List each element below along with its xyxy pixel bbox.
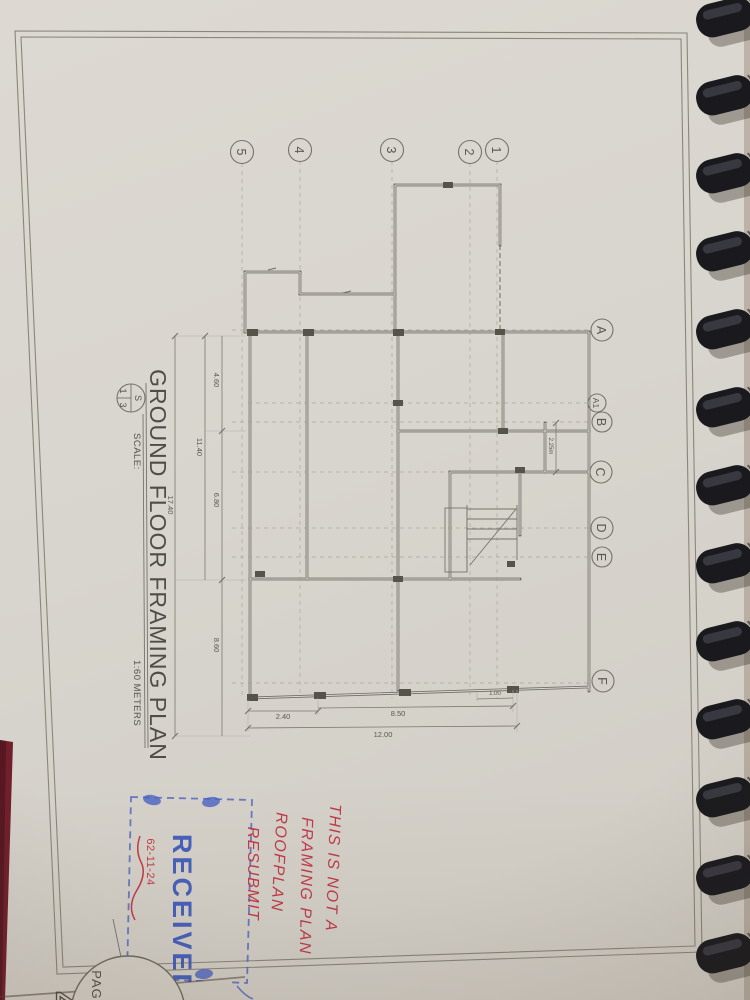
drawing-frame (15, 31, 702, 974)
received-stamp-text: RECEIVED (167, 834, 197, 996)
scale-label: SCALE: (131, 433, 142, 470)
dimensions: 17.40 11.40 4.60 6.80 8.60 2.40 8.50 1.0… (166, 268, 559, 739)
grid-bubble-D-label: D (594, 523, 608, 532)
grid-bubble-E: E (592, 547, 612, 567)
framing-beams-inner (245, 185, 589, 698)
notebook-photo: 17.40 11.40 4.60 6.80 8.60 2.40 8.50 1.0… (0, 0, 750, 1000)
dim-d3-label: 1.00 (489, 691, 501, 697)
grid-bubble-5: 5 (231, 141, 254, 164)
grid-bubble-4-label: 4 (292, 147, 306, 154)
binder-coil (693, 384, 750, 440)
note-line-1: THIS IS NOT A (322, 804, 343, 933)
dim-sub-width-label: 11.40 (195, 438, 204, 456)
framing-beams (245, 185, 589, 698)
underlying-page-corner: PAG 4 (0, 919, 245, 1000)
spiral-binding (693, 0, 750, 1000)
column-markers (247, 182, 525, 701)
detail-marker-top: S (133, 395, 143, 401)
grid-bubble-4: 4 (289, 139, 312, 162)
grid-bubble-B-label: B (594, 418, 608, 426)
dim-w2-label: 6.80 (212, 493, 221, 508)
grid-bubble-A-label: A (594, 326, 608, 335)
binder-coil (693, 306, 750, 362)
note-line-4: RESUBMIT (244, 827, 261, 922)
binder-coil (693, 774, 750, 830)
binder-coil (693, 72, 750, 128)
grid-bubble-B: B (592, 412, 612, 432)
stairs (445, 505, 517, 572)
binder-coil (693, 0, 750, 50)
grid-bubble-3: 3 (381, 139, 404, 162)
dim-d2-label: 8.50 (391, 709, 406, 718)
table-surface (0, 740, 13, 1000)
grid-bubble-D: D (591, 517, 613, 539)
binder-coil (693, 696, 750, 752)
detail-marker: S 1 3 (117, 384, 145, 412)
date-text: 62-11-24 (144, 838, 156, 885)
grid-bubble-E-label: E (594, 553, 608, 561)
reviewer-note: THIS IS NOT A FRAMING PLAN ROOFPLAN RESU… (244, 804, 343, 955)
grid-bubble-2-label: 2 (462, 149, 476, 156)
binder-coil (693, 540, 750, 596)
grid-bubble-2: 2 (459, 141, 482, 164)
grid-bubble-5-label: 5 (234, 149, 248, 156)
grid-bubble-C-label: C (593, 467, 607, 476)
grid-bubbles-numbers: 1 2 3 4 5 (231, 139, 509, 164)
stamp-ink-blob (142, 793, 162, 807)
scale-value: 1:60 METERS (131, 660, 142, 726)
page-number: 4 (36, 991, 96, 1000)
grid-bubble-F-label: F (595, 677, 609, 685)
drawing-title: GROUND FLOOR FRAMING PLAN (145, 369, 171, 761)
dim-d1-label: 2.40 (276, 712, 291, 721)
grid-bubble-F: F (592, 670, 614, 692)
grid-bubbles-letters: A A1 B C D E F (588, 319, 614, 692)
detail-marker-left: 1 (118, 388, 128, 393)
date-annotation: 62-11-24 (131, 836, 156, 920)
dim-total-depth-label: 12.00 (374, 730, 393, 739)
detail-marker-right: 3 (118, 402, 128, 407)
note-line-2: FRAMING PLAN (296, 817, 315, 955)
note-line-3: ROOFPLAN (267, 812, 289, 913)
binder-coil (693, 150, 750, 206)
framing-plan-sheet: 17.40 11.40 4.60 6.80 8.60 2.40 8.50 1.0… (0, 0, 750, 1000)
grid-bubble-A1-label: A1 (591, 398, 601, 409)
grid-bubble-A: A (591, 319, 613, 341)
dim-w3-label: 8.60 (212, 638, 221, 653)
column-grid-lines (232, 161, 591, 698)
dim-interior-label: 2.25m (547, 438, 553, 455)
title-block: S 1 3 GROUND FLOOR FRAMING PLAN SCALE: 1… (117, 369, 171, 761)
binder-coil (693, 618, 750, 674)
grid-bubble-1-label: 1 (489, 147, 503, 154)
grid-bubble-C: C (590, 461, 612, 483)
grid-bubble-3-label: 3 (384, 147, 398, 154)
stamp-ink-blob (201, 796, 220, 808)
signature-squiggle (131, 836, 143, 920)
binder-coil (693, 462, 750, 518)
binder-coil (693, 228, 750, 284)
grid-bubble-A1: A1 (588, 394, 606, 412)
grid-bubble-1: 1 (486, 139, 509, 162)
dim-w1-label: 4.60 (212, 373, 221, 388)
